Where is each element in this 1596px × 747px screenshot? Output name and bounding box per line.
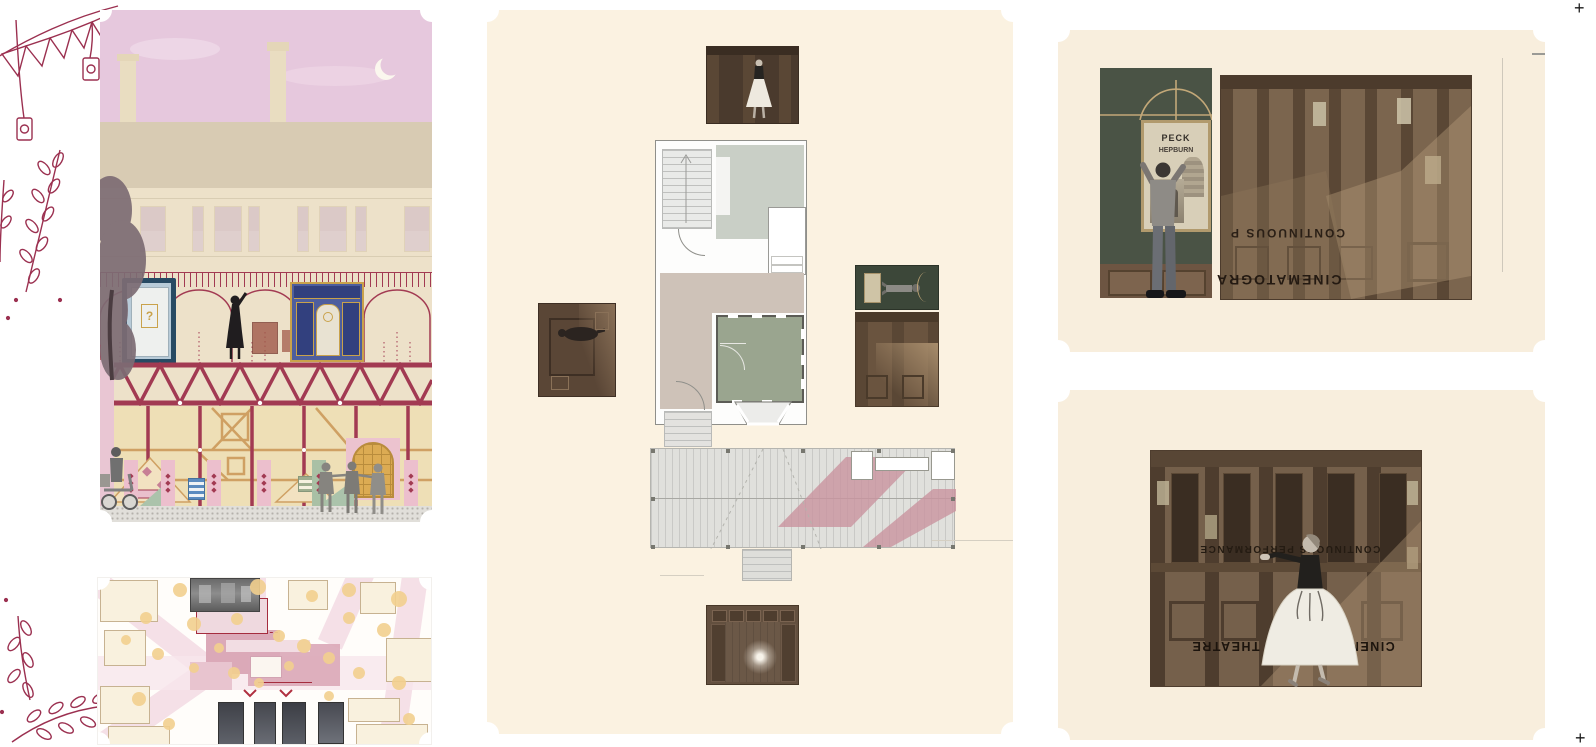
vignette-top-band: [707, 47, 798, 55]
ticket-notch: [1001, 10, 1013, 22]
gold-arc-detail: [917, 272, 936, 302]
faint-line: [932, 540, 1013, 541]
tree-dot: [306, 590, 318, 602]
sash-window: [214, 206, 242, 252]
stair-arrow: [678, 151, 694, 225]
vignette-detail-box: [595, 312, 609, 330]
door-arc: [678, 229, 705, 256]
bed-drawer-line: [771, 256, 803, 265]
tree-dot: [392, 676, 406, 690]
tree-dot: [342, 583, 356, 597]
ceiling-light-glow: [743, 640, 777, 674]
ticket-notch: [1533, 728, 1545, 740]
tree-dot: [323, 652, 335, 664]
sash-window: [355, 206, 367, 252]
crop-mark-bottom-right: +: [1575, 728, 1586, 747]
tree-dot: [132, 692, 146, 706]
floor-plan-panel: [487, 10, 1013, 734]
side-pilaster: [711, 624, 726, 682]
street-tree: [100, 170, 152, 390]
ticket-notch: [1058, 390, 1070, 402]
vignette-detail-box: [551, 376, 569, 390]
theatre-facade: [290, 282, 364, 362]
window-tick: [801, 355, 804, 365]
tree-dot: [250, 579, 266, 595]
tree-dot: [403, 713, 415, 725]
registration-dash: [1532, 53, 1545, 55]
cloud: [130, 38, 220, 60]
vignette-panel-box: [866, 375, 888, 399]
sash-window: [319, 206, 347, 252]
site-plan-panel: [97, 577, 432, 745]
theatre-side-door: [342, 302, 360, 356]
tree-dot: [163, 718, 175, 730]
man-hanging-poster-figure: [1136, 158, 1190, 304]
chimney: [120, 58, 136, 124]
poster-name-peck: PECK: [1144, 133, 1208, 143]
cinema-montage-photo: CONTINUOUS P CINEMATOGRA: [1220, 75, 1472, 300]
balcony-figure: [218, 292, 250, 360]
ticket-notch: [487, 722, 499, 734]
crescent-moon: [372, 54, 402, 84]
terrace-deck: [650, 448, 955, 548]
tree-dot: [324, 691, 334, 701]
lower-steps: [742, 549, 792, 581]
room-door-line: [720, 343, 746, 344]
window-tick: [801, 329, 804, 339]
decorated-pillar: ◆ ◆ ◆: [207, 460, 221, 506]
chimney-cap: [117, 54, 139, 61]
registration-line: [1502, 58, 1503, 272]
ticket-notch: [487, 10, 499, 22]
montage-sign-text: CINEMATOGRA: [1215, 272, 1341, 288]
bedroom-lightwell: [716, 157, 730, 215]
ceiling-panel-square: [729, 610, 744, 622]
bay-window: [734, 401, 792, 426]
elevation-panel: ?: [100, 10, 432, 522]
montage-light-wedge: [1221, 76, 1471, 299]
tree-dot: [189, 663, 199, 673]
poster-panel: PECK HEPBURN: [1058, 30, 1545, 352]
dancer-panel: CONTINUOUS PERFORMANCE CINEMATOGRAPH THE…: [1058, 390, 1545, 740]
sash-window: [404, 206, 430, 252]
poster-vignette-photo: [855, 265, 939, 310]
decorated-pillar: ◆ ◆ ◆: [161, 460, 175, 506]
tree-dot: [173, 583, 187, 597]
mini-dancer-figure: [729, 55, 789, 121]
tree-dot: [140, 612, 152, 624]
ceiling-panel-square: [763, 610, 778, 622]
panelling-vignette-photo: [855, 312, 939, 407]
upper-hall: [660, 273, 804, 313]
tree-dot: [343, 612, 355, 624]
floor-plan-drawing: [655, 140, 807, 425]
window-tick: [728, 315, 738, 318]
side-pilaster: [781, 624, 796, 682]
ticket-notch: [1058, 340, 1070, 352]
dancer-vignette-photo: [706, 46, 799, 124]
tree-dot: [284, 661, 294, 671]
tree-dot: [187, 617, 201, 631]
dancer-figure: [1256, 529, 1366, 689]
tree-dot: [254, 678, 264, 688]
tree-dot: [228, 667, 240, 679]
three-women-figures: [310, 460, 396, 516]
sage-room: [716, 315, 804, 403]
tree-dot: [214, 643, 224, 653]
bed: [768, 207, 806, 275]
tree-dot: [152, 648, 164, 660]
theatre-frieze: [294, 286, 360, 299]
ceiling-panel-square: [712, 610, 727, 622]
poster-name-hepburn: HEPBURN: [1144, 147, 1208, 154]
theatre-side-door: [296, 302, 314, 356]
ceiling-vignette-photo: [706, 605, 799, 685]
sightline-dashes: [651, 449, 956, 549]
ceiling-panel-square: [780, 610, 795, 622]
tree-dot: [353, 667, 365, 679]
ticket-notch: [1001, 722, 1013, 734]
faint-line: [660, 575, 704, 576]
ticket-notch: [1058, 30, 1070, 42]
ticket-notch: [1058, 728, 1070, 740]
balcony-stall: [252, 322, 278, 354]
montage-sign-text: CONTINUOUS P: [1229, 226, 1345, 240]
ceiling-panel-square: [746, 610, 761, 622]
chimney-cap: [267, 42, 289, 51]
window-tick: [752, 315, 762, 318]
tree-dot: [121, 635, 131, 645]
presentation-board: ?: [0, 0, 1596, 747]
ticket-notch: [1533, 340, 1545, 352]
crop-mark-top-right: +: [1574, 0, 1585, 19]
tree-dots: [98, 578, 432, 745]
tree-dot: [297, 639, 311, 653]
tree-dot: [377, 623, 391, 637]
ticket-notch: [1533, 390, 1545, 402]
window-tick: [801, 379, 804, 389]
decorated-pillar: ◆ ◆ ◆: [257, 460, 271, 506]
sash-window: [192, 206, 204, 252]
cinema-facade-photo: CONTINUOUS PERFORMANCE CINEMATOGRAPH THE…: [1150, 450, 1422, 687]
scooter-rider-figure: [100, 444, 138, 514]
sash-window: [297, 206, 309, 252]
mini-poster: [864, 273, 881, 303]
tree-dot: [231, 613, 243, 625]
ticket-notch: [1533, 30, 1545, 42]
vignette-top-band: [856, 313, 938, 322]
theatre-door-medallion: [323, 312, 333, 322]
chimney: [270, 50, 286, 124]
tree-dot: [273, 630, 285, 642]
window-tick: [776, 315, 786, 318]
foyer-vignette-photo: [538, 303, 616, 397]
entry-steps: [664, 411, 712, 447]
decorated-pillar: ◆ ◆ ◆: [404, 460, 418, 506]
room-door-arc: [720, 345, 745, 370]
bed-drawer-line: [771, 265, 803, 273]
tree-dot: [391, 591, 407, 607]
vignette-panel-box: [902, 375, 924, 399]
sash-window: [248, 206, 260, 252]
